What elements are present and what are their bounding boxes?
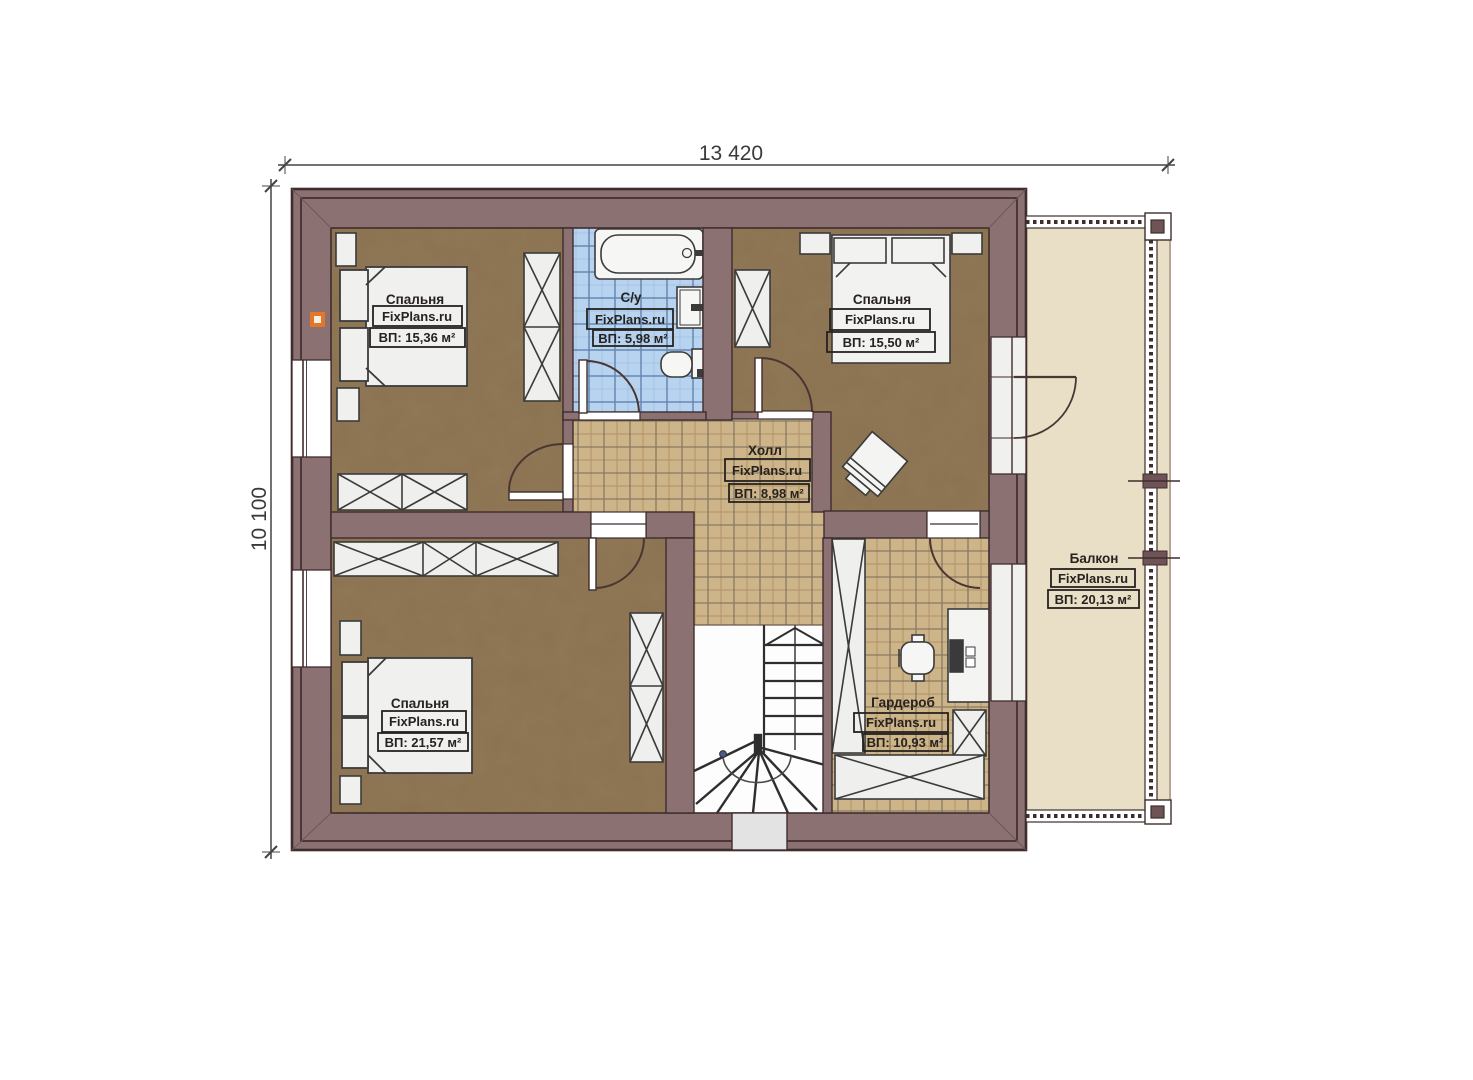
svg-text:ВП: 8,98 м²: ВП: 8,98 м²	[734, 486, 804, 501]
svg-text:Гардероб: Гардероб	[871, 695, 935, 710]
svg-text:Спальня: Спальня	[386, 292, 444, 307]
svg-text:13 420: 13 420	[699, 142, 763, 165]
svg-text:Холл: Холл	[748, 443, 782, 458]
svg-text:ВП: 5,98 м²: ВП: 5,98 м²	[598, 331, 668, 346]
svg-text:ВП: 15,50 м²: ВП: 15,50 м²	[843, 335, 920, 350]
svg-text:10 100: 10 100	[248, 487, 271, 551]
svg-text:FixPlans.ru: FixPlans.ru	[595, 312, 665, 327]
svg-text:FixPlans.ru: FixPlans.ru	[382, 309, 452, 324]
svg-text:С/у: С/у	[620, 290, 642, 305]
svg-text:ВП: 21,57 м²: ВП: 21,57 м²	[385, 735, 462, 750]
svg-text:Спальня: Спальня	[853, 292, 911, 307]
svg-text:FixPlans.ru: FixPlans.ru	[732, 463, 802, 478]
svg-text:FixPlans.ru: FixPlans.ru	[866, 715, 936, 730]
svg-text:Спальня: Спальня	[391, 696, 449, 711]
svg-text:ВП: 10,93 м²: ВП: 10,93 м²	[867, 735, 944, 750]
svg-text:Балкон: Балкон	[1070, 551, 1119, 566]
svg-text:ВП: 20,13 м²: ВП: 20,13 м²	[1055, 592, 1132, 607]
svg-text:FixPlans.ru: FixPlans.ru	[845, 312, 915, 327]
svg-text:FixPlans.ru: FixPlans.ru	[389, 714, 459, 729]
svg-text:ВП: 15,36 м²: ВП: 15,36 м²	[379, 330, 456, 345]
svg-text:FixPlans.ru: FixPlans.ru	[1058, 571, 1128, 586]
